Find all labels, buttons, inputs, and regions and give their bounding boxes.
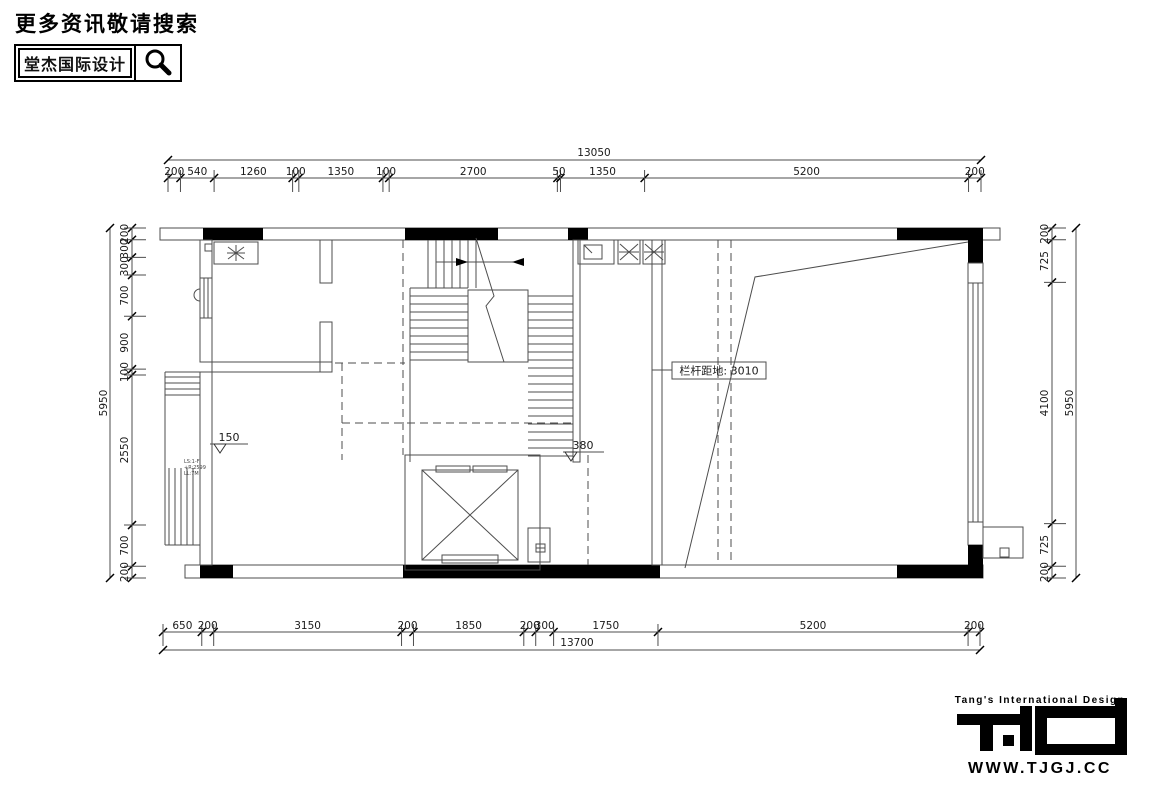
dim-label: 2550: [119, 437, 131, 464]
fan-fixture: [205, 242, 258, 264]
railing-annotation: 栏杆距地: 3010: [652, 362, 766, 379]
balcony-louver: [165, 377, 200, 395]
dim-label: 5200: [800, 620, 827, 632]
dim-label: 100: [376, 166, 396, 178]
dim-label: 650: [172, 620, 192, 632]
left-window: [194, 278, 212, 318]
dim-label: 200: [1039, 224, 1051, 244]
dim-total-bottom-label: 13700: [560, 637, 593, 649]
interior-walls: [212, 240, 662, 565]
dim-label: 2700: [460, 166, 487, 178]
dim-label: 1350: [328, 166, 355, 178]
level-380-label: 380: [573, 439, 594, 452]
dim-total-top: 13050: [164, 147, 985, 164]
dim-total-left: 5950: [98, 224, 114, 582]
dim-label: 725: [1039, 251, 1051, 271]
tjgj-logo: Tang's International Design WWW.TJGJ.CC: [948, 690, 1134, 780]
dim-label: 200: [164, 166, 184, 178]
dim-total-top-label: 13050: [577, 147, 610, 159]
stair-direction-arrow: [512, 258, 524, 266]
dim-total-right: 5950: [1064, 224, 1080, 582]
dim-label: 900: [119, 333, 131, 353]
floor-plan-drawing: 2005401260100135010027005013505200200 65…: [0, 0, 1158, 800]
stair-break-line: [476, 238, 504, 362]
dim-label: 300: [119, 256, 131, 276]
footer-tagline: Tang's International Design: [955, 695, 1126, 706]
dim-label: 700: [119, 536, 131, 556]
right-window: [968, 283, 983, 522]
dim-chain-top: 2005401260100135010027005013505200200: [164, 166, 985, 192]
dim-label: 200: [119, 562, 131, 582]
dim-label: 1260: [240, 166, 267, 178]
stair-treads-left: [410, 296, 468, 360]
dim-label: 5200: [793, 166, 820, 178]
dim-chain-right: 2007254100725200: [1039, 224, 1066, 582]
dim-label: 300: [119, 239, 131, 259]
dim-label: 1350: [589, 166, 616, 178]
dim-label: 100: [119, 362, 131, 382]
illegible-note: LS:1-F +R:2599 LL:7M: [184, 459, 206, 477]
dim-label: 200: [397, 620, 417, 632]
ac-platform: [983, 527, 1023, 558]
elevator: [405, 455, 550, 570]
dim-label: 200: [964, 620, 984, 632]
dim-label: 50: [552, 166, 565, 178]
dim-label: 725: [1039, 535, 1051, 555]
dim-chain-left: 2003003007009001002550700200: [119, 224, 146, 582]
dim-label: 700: [119, 286, 131, 306]
dim-label: 1750: [592, 620, 619, 632]
level-marker-150: 150: [210, 431, 248, 453]
dashed-lines: [335, 240, 731, 565]
sloped-roof-line: [685, 242, 968, 568]
dim-total-left-label: 5950: [98, 390, 110, 417]
dim-total-right-label: 5950: [1064, 390, 1076, 417]
tid-logomark: [957, 698, 1127, 755]
balcony-railing: [169, 468, 193, 545]
illegible-note-line: LL:7M: [184, 471, 199, 477]
dim-label: 540: [187, 166, 207, 178]
dim-label: 1850: [455, 620, 482, 632]
footer-logo: Tang's International Design WWW.TJGJ.CC: [948, 690, 1134, 780]
dim-label: 200: [965, 166, 985, 178]
dim-label: 200: [198, 620, 218, 632]
level-marker-380: 380: [563, 439, 604, 461]
staircase: [410, 238, 573, 462]
dim-label: 3150: [294, 620, 321, 632]
dim-label: 100: [286, 166, 306, 178]
level-150-label: 150: [219, 431, 240, 444]
stair-treads-top: [428, 240, 476, 288]
footer-website: WWW.TJGJ.CC: [968, 760, 1112, 777]
dim-label: 200: [1039, 562, 1051, 582]
dim-total-bottom: 13700: [159, 637, 984, 654]
dim-label: 300: [535, 620, 555, 632]
stair-treads-right: [528, 296, 573, 456]
stair-direction-arrow: [456, 258, 468, 266]
dim-label: 4100: [1039, 390, 1051, 417]
railing-label: 栏杆距地: 3010: [679, 364, 758, 378]
